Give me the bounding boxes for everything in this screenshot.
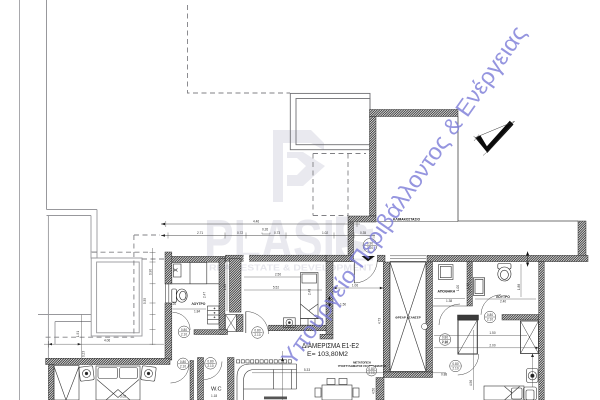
svg-text:4.06: 4.06 <box>104 339 110 343</box>
svg-text:W.C: W.C <box>211 387 222 393</box>
svg-text:1.91: 1.91 <box>76 331 80 337</box>
svg-text:2.10: 2.10 <box>452 367 458 371</box>
svg-text:1.18: 1.18 <box>211 394 217 398</box>
svg-text:Ε= 103,80Μ2: Ε= 103,80Μ2 <box>307 351 348 358</box>
svg-text:1.20: 1.20 <box>170 302 176 306</box>
svg-text:0.80: 0.80 <box>180 360 186 364</box>
svg-text:2.00: 2.00 <box>489 343 495 347</box>
svg-text:1.02: 1.02 <box>322 231 328 235</box>
svg-text:ΦΡΕΑΡ ΑΣΑΝΣΕΡ: ΦΡΕΑΡ ΑΣΑΝΣΕΡ <box>395 316 420 320</box>
svg-text:1.88: 1.88 <box>517 284 521 290</box>
svg-text:2.47: 2.47 <box>203 292 207 298</box>
svg-text:5.02: 5.02 <box>120 395 126 399</box>
svg-text:0.23: 0.23 <box>82 351 86 357</box>
svg-text:ΑΠΟΘΗΚΗ: ΑΠΟΘΗΚΗ <box>438 290 456 294</box>
svg-text:5.33: 5.33 <box>304 368 310 372</box>
svg-text:ΥΠΟΣΤΥΛΩΜΑΤΟΣ ΣΚΥΡΟΔΕΜΑΤΟΣ: ΥΠΟΣΤΥΛΩΜΑΤΟΣ ΣΚΥΡΟΔΕΜΑΤΟΣ <box>338 364 387 368</box>
svg-text:2.10: 2.10 <box>368 371 374 375</box>
svg-text:2.10: 2.10 <box>207 364 213 368</box>
svg-text:1.00: 1.00 <box>456 285 460 291</box>
svg-text:2.50: 2.50 <box>275 273 281 277</box>
svg-text:4.50: 4.50 <box>372 388 376 394</box>
svg-text:5.52: 5.52 <box>273 285 279 289</box>
svg-text:0.80: 0.80 <box>442 336 448 340</box>
svg-text:5.35: 5.35 <box>143 298 147 304</box>
svg-text:2.71: 2.71 <box>197 231 203 235</box>
svg-text:0.80: 0.80 <box>254 329 260 333</box>
svg-text:4.73: 4.73 <box>378 318 382 324</box>
svg-text:1.50: 1.50 <box>489 331 495 335</box>
svg-text:0.73: 0.73 <box>274 231 280 235</box>
svg-text:2.48: 2.48 <box>308 289 312 295</box>
svg-text:2.40: 2.40 <box>500 299 506 303</box>
svg-text:4.46: 4.46 <box>253 219 259 223</box>
svg-text:0.72: 0.72 <box>237 231 243 235</box>
svg-text:2.10: 2.10 <box>254 333 260 337</box>
svg-text:7.30: 7.30 <box>442 341 448 345</box>
svg-text:0.80: 0.80 <box>207 360 213 364</box>
svg-text:0.90: 0.90 <box>149 269 153 275</box>
svg-text:0.26: 0.26 <box>262 228 268 232</box>
svg-text:1.38: 1.38 <box>446 299 452 303</box>
svg-text:1.84: 1.84 <box>194 310 200 314</box>
svg-text:2.10: 2.10 <box>487 318 493 322</box>
svg-text:1.90: 1.90 <box>466 283 470 289</box>
svg-text:ΛΟΥΤΡΟ: ΛΟΥΤΡΟ <box>496 295 510 299</box>
svg-text:0.80: 0.80 <box>452 362 458 366</box>
svg-text:0.80: 0.80 <box>487 313 493 317</box>
svg-text:2.10: 2.10 <box>181 332 187 336</box>
svg-text:4.56: 4.56 <box>469 380 473 386</box>
svg-text:ΛΟΥΤΡΟ: ΛΟΥΤΡΟ <box>192 302 206 306</box>
svg-text:2.10: 2.10 <box>180 364 186 368</box>
svg-text:0.88: 0.88 <box>441 373 447 377</box>
svg-text:0.80: 0.80 <box>181 328 187 332</box>
svg-text:1.90: 1.90 <box>223 284 227 290</box>
